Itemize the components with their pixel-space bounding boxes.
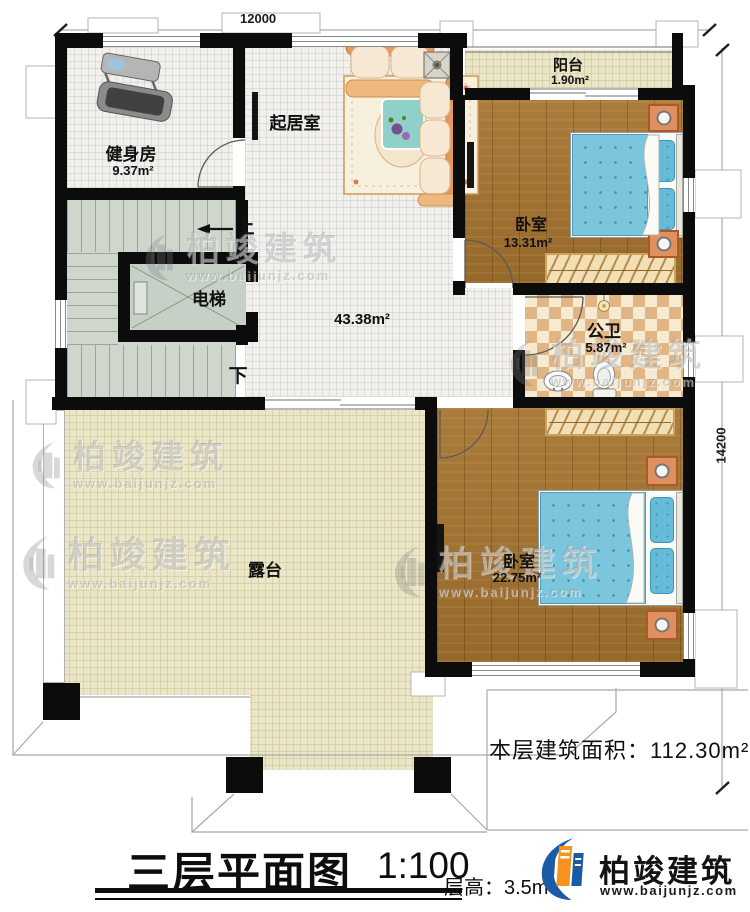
window [292,35,418,47]
bathroom-area: 5.87m² [585,341,626,354]
window [683,178,695,212]
terrace-floor [20,410,440,794]
tv-bedroom2 [437,524,444,572]
title-underline-thin [95,898,462,900]
stair-up-label: 上 [235,218,254,237]
tv-bedroom1 [467,142,474,188]
balcony-area: 1.90m² [551,74,589,86]
terrace-label: 露台 [248,562,282,579]
column [414,757,451,793]
window [683,613,695,659]
stair-flight-lower [67,345,236,397]
total-area-text: 本层建筑面积：112.30m² [489,733,749,765]
column [226,757,263,793]
floor-height-text: 层高：3.5m [444,871,548,900]
brand-website: www.baijunjz.com [600,883,738,898]
bathroom-label: 公卫 [587,323,621,340]
nightstand [646,456,678,486]
window [55,300,67,348]
stair-flight-side [67,252,118,345]
hall-floor [245,47,453,397]
bedroom2-area: 22.75m² [493,571,541,584]
title-underline [95,888,462,893]
nightstand [648,230,679,258]
stair-flight-upper [67,200,236,252]
window [683,343,695,377]
living-label: 起居室 [270,115,321,132]
bedroom1-area: 13.31m² [504,236,552,249]
balcony-label: 阳台 [553,58,583,73]
bedroom2-label: 卧室 [503,555,535,571]
brand-logo-icon [538,834,596,902]
tv-living [252,92,258,140]
bedroom1-label: 卧室 [515,218,547,234]
hall-area: 43.38m² [334,312,390,327]
wardrobe-bedroom2 [545,408,675,436]
hall-floor-strip [453,288,513,397]
gym-area: 9.37m² [112,164,153,177]
stair-down-label: 下 [228,367,247,386]
nightstand [646,610,678,640]
window [103,35,200,47]
dimension-height: 14200 [714,427,729,463]
column [43,683,80,720]
dimension-width: 12000 [240,11,276,26]
elevator-floor [130,264,246,330]
floor-plan-page: 柏竣建筑 www.baijunjz.com 柏竣建筑 www.baijunjz.… [0,0,750,912]
window [472,663,640,676]
nightstand [648,104,679,132]
elevator-label: 电梯 [192,291,226,308]
gym-label: 健身房 [106,146,157,163]
terrace-parapet [43,410,65,683]
